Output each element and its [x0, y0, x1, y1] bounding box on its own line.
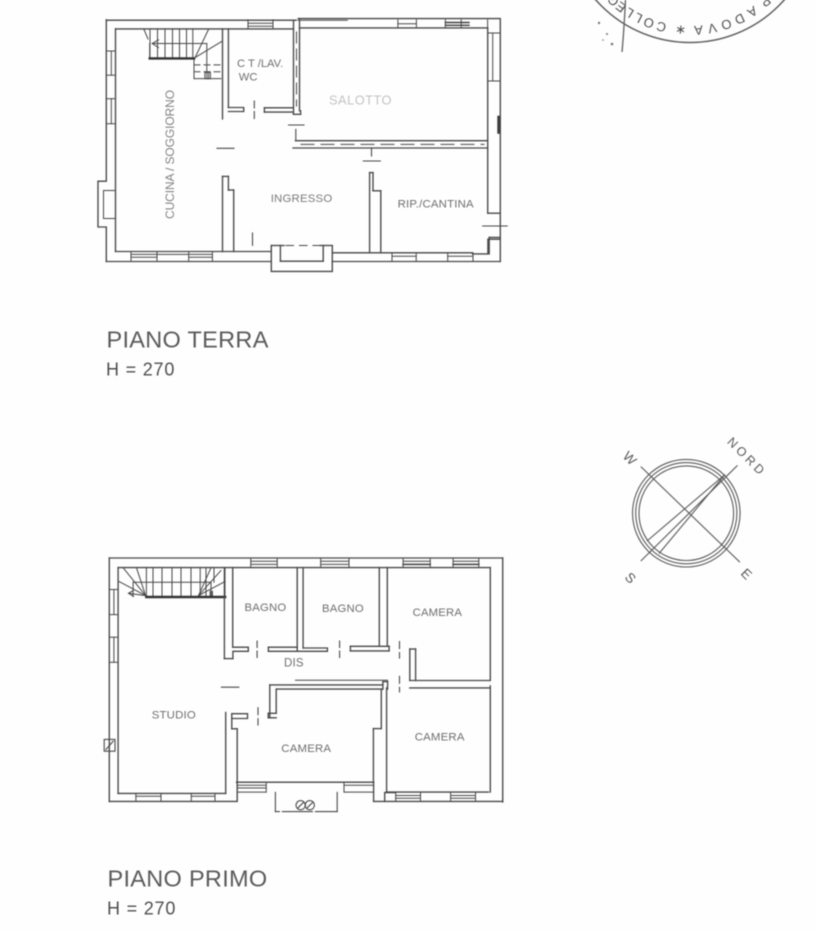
- svg-text:V: V: [706, 20, 718, 36]
- svg-text:SALOTTO: SALOTTO: [329, 93, 392, 108]
- svg-text:RIP./CANTINA: RIP./CANTINA: [398, 199, 474, 211]
- svg-text:DIS: DIS: [284, 658, 304, 670]
- svg-text:H = 270: H = 270: [107, 899, 176, 919]
- svg-text:BAGNO: BAGNO: [322, 603, 364, 615]
- svg-text:NORD: NORD: [724, 435, 769, 480]
- svg-text:O: O: [719, 16, 733, 33]
- svg-text:INGRESSO: INGRESSO: [271, 193, 333, 205]
- svg-text:C: C: [655, 18, 668, 35]
- svg-text:CAMERA: CAMERA: [281, 743, 331, 755]
- svg-text:D: D: [732, 10, 747, 28]
- svg-text:W: W: [620, 449, 640, 469]
- svg-text:H = 270: H = 270: [106, 360, 175, 380]
- svg-text:P: P: [757, 0, 773, 10]
- svg-text:∗: ∗: [674, 22, 686, 38]
- svg-text:WC: WC: [239, 72, 258, 84]
- svg-text:A: A: [744, 3, 760, 20]
- svg-text:CAMERA: CAMERA: [413, 607, 463, 619]
- svg-text:S: S: [622, 570, 639, 587]
- svg-text:PIANO PRIMO: PIANO PRIMO: [108, 866, 268, 892]
- svg-text:CUCINA / SOGGIORNO: CUCINA / SOGGIORNO: [163, 90, 177, 219]
- svg-text:CAMERA: CAMERA: [415, 732, 465, 744]
- svg-text:E: E: [738, 566, 755, 583]
- svg-text:C T /LAV.: C T /LAV.: [237, 58, 283, 70]
- svg-text:PIANO TERRA: PIANO TERRA: [107, 327, 269, 353]
- svg-text:STUDIO: STUDIO: [152, 710, 196, 722]
- svg-text:BAGNO: BAGNO: [245, 602, 287, 614]
- svg-text:A: A: [693, 22, 703, 38]
